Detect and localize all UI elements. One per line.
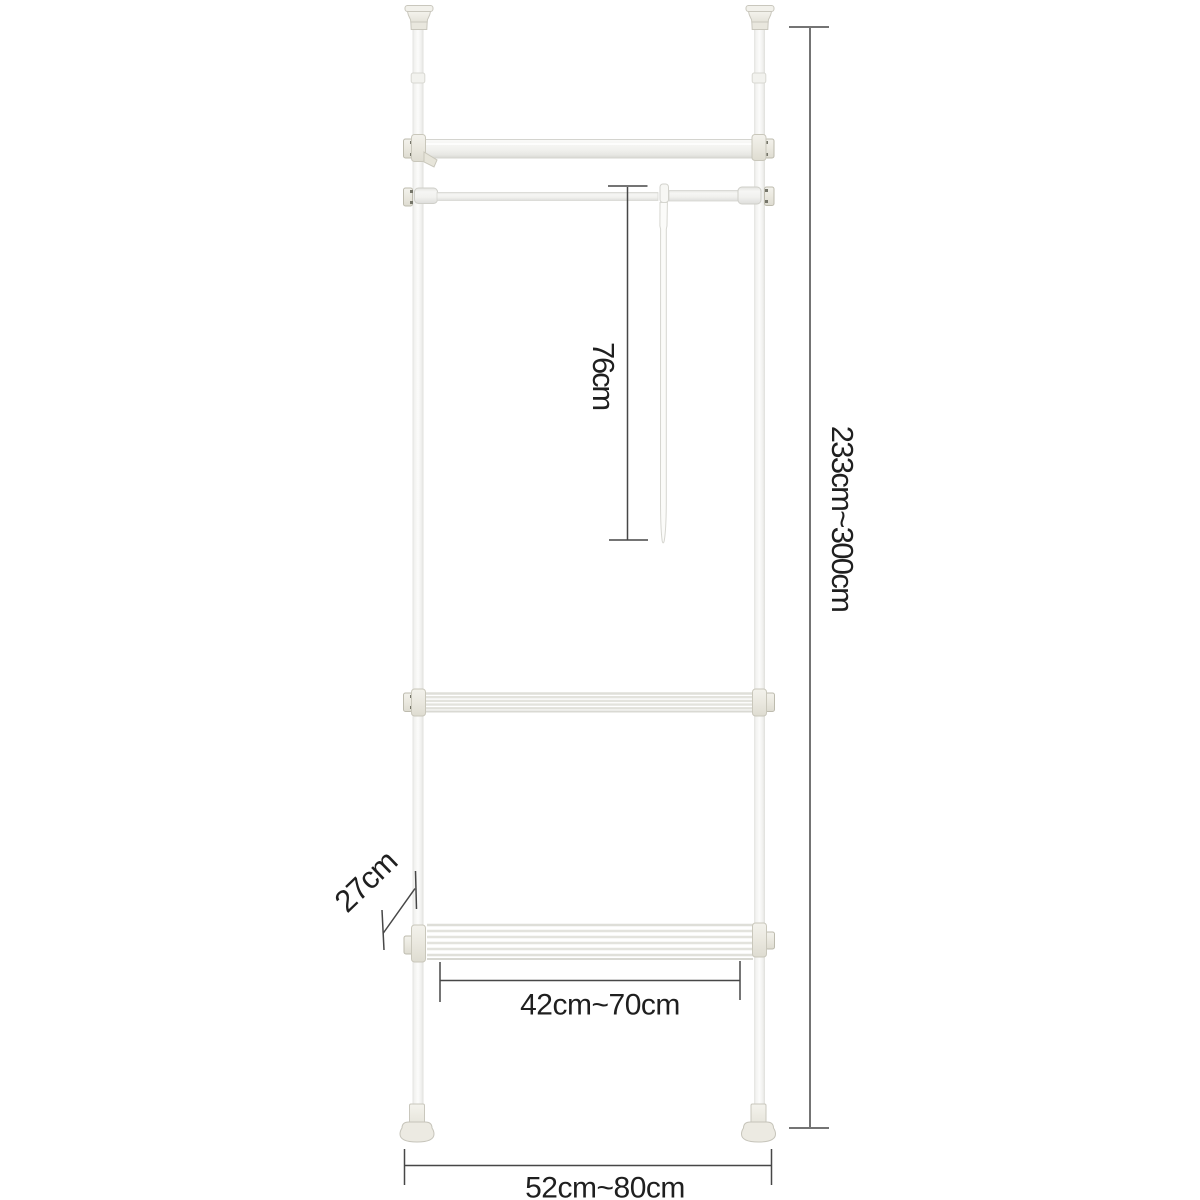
svg-text:42cm~70cm: 42cm~70cm	[520, 989, 680, 1022]
svg-text:52cm~80cm: 52cm~80cm	[525, 1172, 685, 1200]
svg-text:233cm~300cm: 233cm~300cm	[825, 426, 860, 612]
svg-text:76cm: 76cm	[586, 342, 621, 409]
